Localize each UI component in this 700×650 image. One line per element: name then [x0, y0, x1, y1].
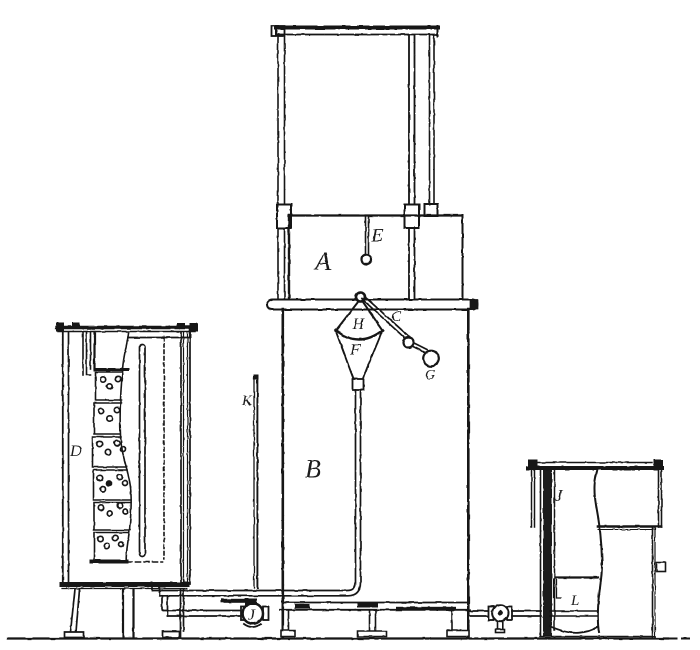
svg-text:H: H — [352, 316, 366, 333]
svg-text:B: B — [305, 455, 321, 484]
svg-text:J: J — [248, 607, 256, 624]
svg-text:J: J — [555, 486, 564, 505]
svg-text:C: C — [391, 309, 402, 325]
svg-text:A: A — [313, 247, 331, 276]
svg-text:L: L — [570, 593, 579, 609]
svg-text:F: F — [349, 340, 361, 359]
svg-text:G: G — [425, 368, 435, 383]
svg-text:D: D — [69, 443, 82, 460]
svg-text:K: K — [241, 393, 253, 409]
svg-text:E: E — [371, 226, 384, 247]
